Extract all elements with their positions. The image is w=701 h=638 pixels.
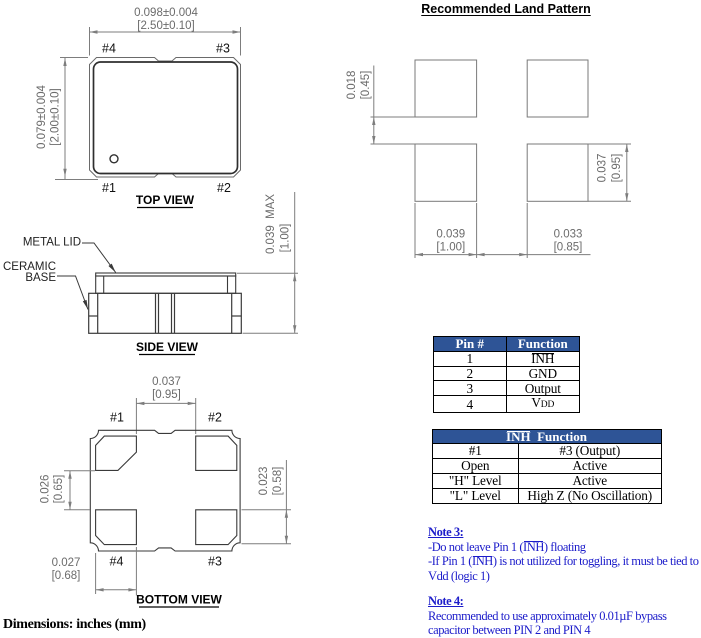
svg-text:#4: #4 (102, 42, 116, 56)
svg-text:0.023: 0.023 (258, 467, 270, 496)
svg-text:#2: #2 (208, 411, 222, 425)
svg-text:0.039: 0.039 (436, 229, 465, 241)
svg-text:[0.95]: [0.95] (611, 154, 623, 183)
svg-text:[0.65]: [0.65] (53, 475, 65, 504)
svg-text:[2.50±0.10]: [2.50±0.10] (137, 20, 194, 32)
svg-text:#2: #2 (217, 181, 231, 195)
svg-text:0.018: 0.018 (346, 71, 358, 100)
svg-text:SIDE VIEW: SIDE VIEW (136, 340, 199, 354)
svg-text:0.098±0.004: 0.098±0.004 (134, 7, 198, 19)
svg-text:0.033: 0.033 (554, 229, 583, 241)
svg-text:#1: #1 (102, 181, 116, 195)
svg-text:0.039 MAX: 0.039 MAX (265, 194, 277, 254)
svg-text:0.026: 0.026 (40, 475, 52, 504)
svg-text:#1: #1 (110, 411, 124, 425)
svg-text:[0.85]: [0.85] (554, 242, 583, 254)
svg-text:[0.95]: [0.95] (152, 389, 181, 401)
svg-text:[1.00]: [1.00] (280, 224, 292, 253)
svg-text:BASE: BASE (25, 272, 56, 284)
svg-text:[0.58]: [0.58] (272, 467, 284, 496)
svg-text:[2.00±0.10]: [2.00±0.10] (50, 88, 62, 145)
svg-text:0.037: 0.037 (152, 376, 181, 388)
svg-text:0.079±0.004: 0.079±0.004 (36, 84, 48, 148)
svg-text:0.027: 0.027 (52, 557, 81, 569)
svg-text:#3: #3 (208, 555, 222, 569)
svg-text:[0.45]: [0.45] (360, 71, 372, 100)
svg-text:#3: #3 (216, 42, 230, 56)
svg-text:BOTTOM VIEW: BOTTOM VIEW (136, 593, 222, 607)
svg-text:TOP VIEW: TOP VIEW (136, 193, 195, 207)
svg-text:[1.00]: [1.00] (436, 242, 465, 254)
svg-text:0.037: 0.037 (597, 154, 609, 183)
svg-text:METAL LID: METAL LID (23, 237, 81, 249)
svg-text:#4: #4 (110, 555, 124, 569)
svg-text:[0.68]: [0.68] (52, 570, 81, 582)
